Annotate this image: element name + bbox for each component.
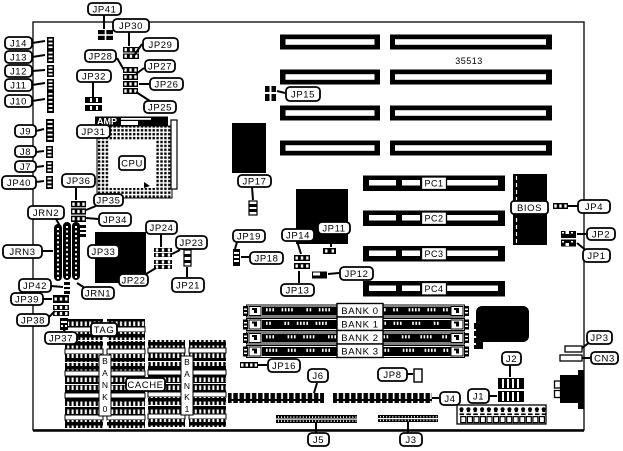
svg-text:JP17: JP17 [242,176,266,187]
svg-text:J10: J10 [10,96,27,107]
svg-text:JP38: JP38 [21,315,45,326]
svg-text:JP36: JP36 [66,176,90,187]
svg-text:PC4: PC4 [424,284,443,294]
svg-text:JP13: JP13 [285,285,309,296]
svg-text:A: A [102,368,108,378]
svg-text:JRN2: JRN2 [33,208,59,219]
svg-text:BANK 1: BANK 1 [341,319,378,330]
svg-text:CPU: CPU [121,158,143,169]
svg-text:JP4: JP4 [585,202,603,213]
svg-text:J14: J14 [10,38,27,49]
svg-text:JP15: JP15 [291,89,315,100]
svg-text:B: B [102,356,108,366]
svg-text:JP14: JP14 [286,230,310,241]
svg-text:JP40: JP40 [7,178,31,189]
svg-text:JP31: JP31 [81,127,105,138]
svg-text:K: K [102,392,108,402]
svg-text:JP25: JP25 [148,102,172,113]
svg-text:BANK 2: BANK 2 [341,333,378,344]
svg-text:J5: J5 [313,435,324,446]
svg-text:K: K [184,392,190,402]
svg-text:J4: J4 [444,394,455,405]
svg-text:35513: 35513 [455,56,483,66]
svg-text:JP30: JP30 [119,21,143,32]
svg-text:B: B [184,357,190,367]
svg-text:PC1: PC1 [424,179,443,189]
svg-text:JP42: JP42 [23,281,47,292]
svg-text:JP1: JP1 [587,251,605,262]
svg-text:A: A [184,369,190,379]
svg-text:J9: J9 [20,126,31,137]
svg-text:JP37: JP37 [49,333,73,344]
svg-text:JP23: JP23 [179,238,203,249]
svg-text:BANK 0: BANK 0 [341,306,378,317]
svg-text:N: N [184,381,190,391]
svg-text:N: N [102,380,108,390]
svg-text:JP29: JP29 [148,40,172,51]
svg-text:JP28: JP28 [88,51,112,62]
svg-text:BANK 3: BANK 3 [341,346,378,357]
svg-text:J11: J11 [10,80,26,91]
svg-text:JP34: JP34 [103,215,127,226]
svg-text:JP24: JP24 [149,223,173,234]
svg-text:PC3: PC3 [424,249,443,259]
svg-text:J3: J3 [405,435,416,446]
svg-text:J1: J1 [473,391,484,402]
svg-text:J13: J13 [10,52,27,63]
svg-text:JP19: JP19 [237,231,261,242]
svg-text:J8: J8 [20,147,31,158]
svg-text:JP41: JP41 [92,4,116,15]
svg-text:JP2: JP2 [592,229,610,240]
svg-text:BIOS: BIOS [517,203,542,214]
svg-text:JP39: JP39 [15,294,39,305]
svg-text:J12: J12 [10,66,27,77]
svg-text:JP21: JP21 [176,280,200,291]
svg-text:CN3: CN3 [594,353,615,364]
svg-text:JP18: JP18 [254,253,278,264]
svg-text:0: 0 [103,404,108,414]
svg-text:JRN1: JRN1 [85,288,111,299]
svg-text:J2: J2 [506,354,517,365]
svg-text:JP11: JP11 [322,223,345,234]
svg-text:JP26: JP26 [154,79,178,90]
svg-text:JP35: JP35 [96,195,120,206]
svg-text:J7: J7 [20,162,31,173]
svg-text:CACHE: CACHE [127,380,163,391]
svg-text:PC2: PC2 [424,214,443,224]
svg-text:JP22: JP22 [121,275,145,286]
svg-text:1: 1 [185,404,190,414]
svg-text:JP16: JP16 [272,361,296,372]
svg-text:TAG: TAG [94,325,115,336]
svg-text:JRN3: JRN3 [9,247,35,258]
svg-text:JP3: JP3 [590,333,608,344]
svg-text:JP8: JP8 [383,370,401,381]
svg-text:JP33: JP33 [91,247,115,258]
svg-text:JP12: JP12 [344,269,368,280]
svg-text:JP32: JP32 [82,71,106,82]
svg-text:JP27: JP27 [148,61,172,72]
svg-text:J6: J6 [312,371,323,382]
